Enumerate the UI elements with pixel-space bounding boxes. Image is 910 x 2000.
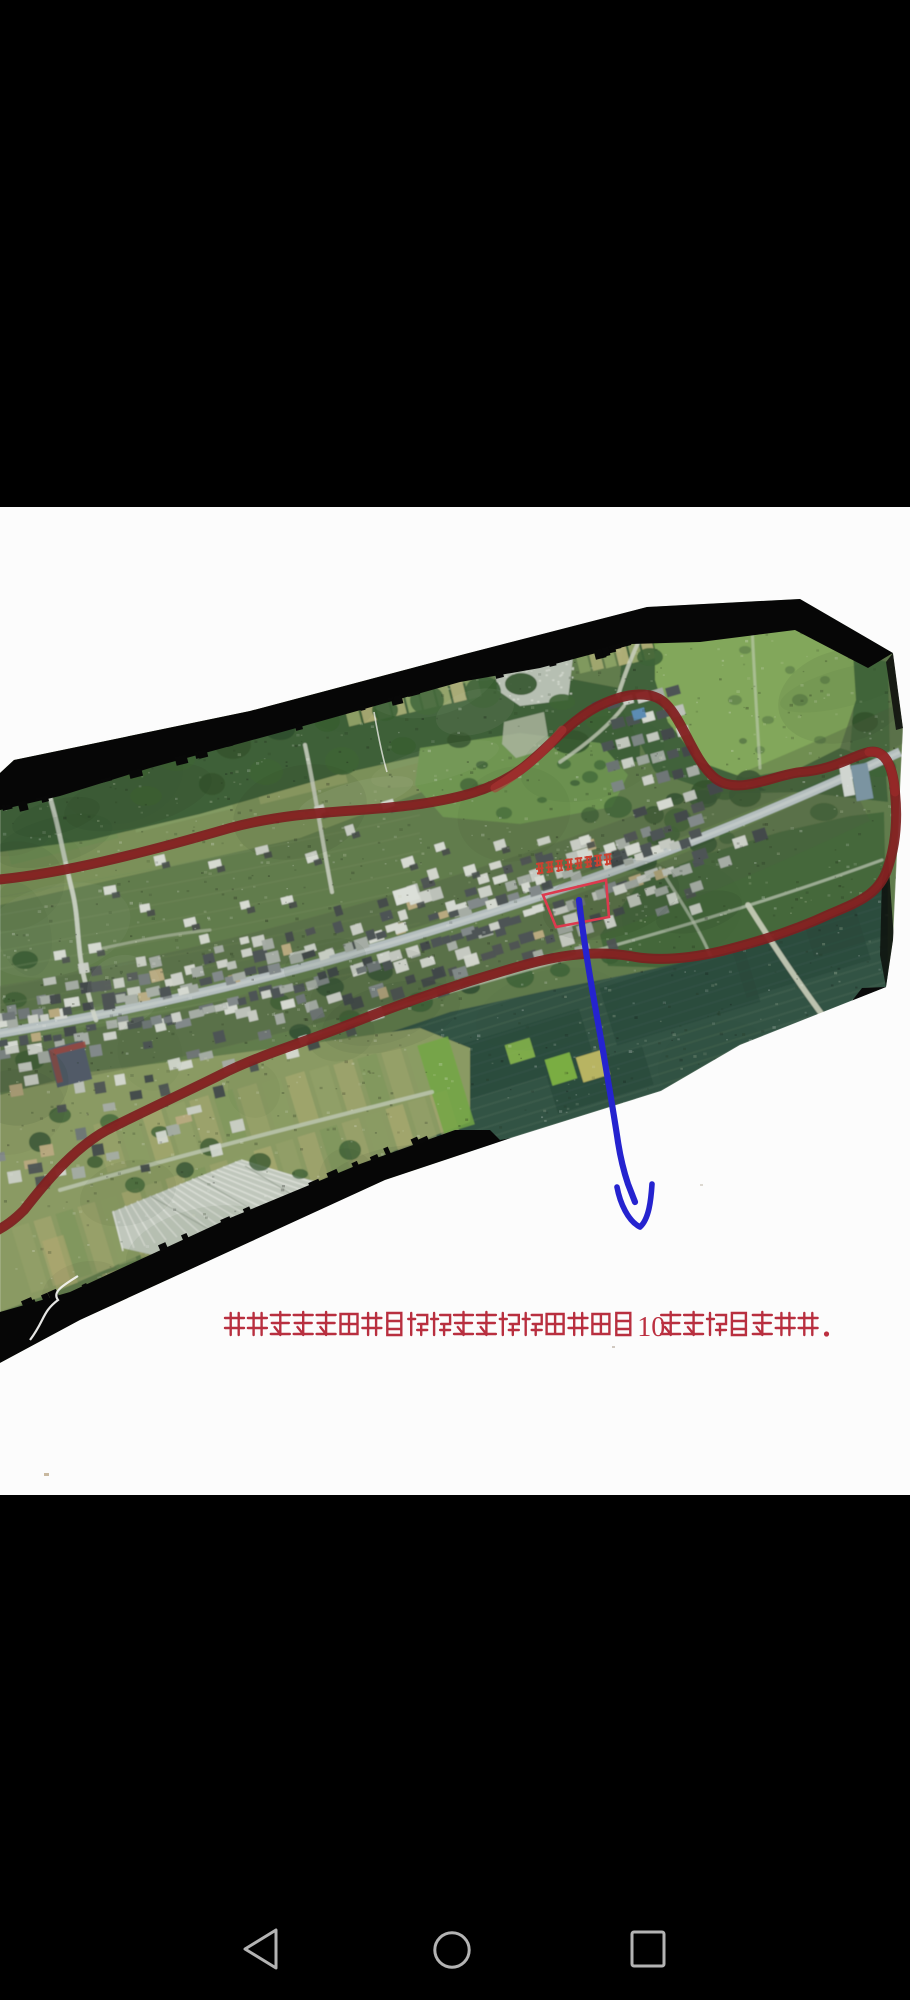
svg-text:10: 10 xyxy=(637,1312,665,1343)
